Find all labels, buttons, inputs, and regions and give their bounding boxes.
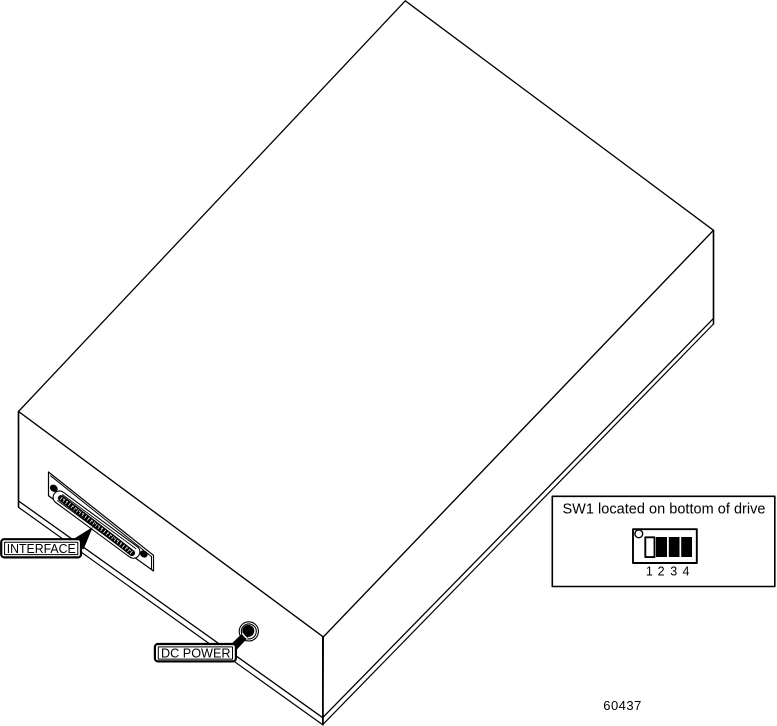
svg-text:4: 4 <box>683 565 690 579</box>
svg-text:INTERFACE: INTERFACE <box>7 541 76 556</box>
svg-text:2: 2 <box>658 565 665 579</box>
svg-text:SW1 located on bottom of drive: SW1 located on bottom of drive <box>563 501 766 517</box>
svg-text:60437: 60437 <box>603 698 641 713</box>
svg-text:DC POWER: DC POWER <box>161 645 231 660</box>
svg-text:3: 3 <box>670 565 677 579</box>
svg-text:1: 1 <box>646 565 653 579</box>
